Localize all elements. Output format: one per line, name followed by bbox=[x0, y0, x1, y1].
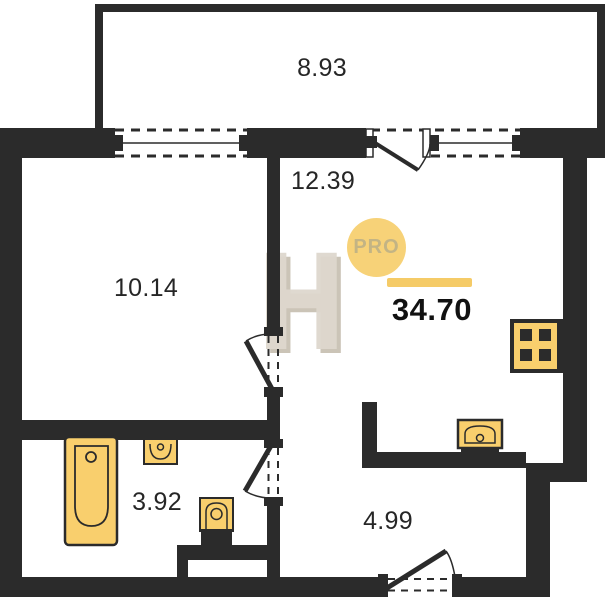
duct-wall-horizontal bbox=[177, 545, 270, 560]
exterior-wall-top-c bbox=[520, 128, 605, 158]
floor-plan: H H bbox=[0, 0, 607, 600]
exterior-wall-left bbox=[0, 128, 22, 597]
entrance-door-jamb bbox=[452, 574, 462, 597]
bathroom-wall-top bbox=[0, 420, 280, 440]
balcony-door bbox=[364, 129, 430, 170]
bathroom-area-label: 3.92 bbox=[107, 488, 207, 517]
window-cap bbox=[114, 135, 123, 151]
plan-symbols-under: H H bbox=[0, 0, 607, 600]
balcony-area-label: 8.93 bbox=[272, 54, 372, 83]
window-cap bbox=[512, 135, 521, 151]
bathroom-door bbox=[245, 444, 272, 498]
stove-icon bbox=[510, 319, 563, 373]
pro-badge-label: PRO bbox=[353, 236, 399, 259]
exterior-wall-right-upper bbox=[563, 158, 587, 482]
door-jamb bbox=[264, 497, 283, 506]
exterior-wall-bottom-a bbox=[0, 577, 387, 597]
balcony-wall-top bbox=[95, 4, 605, 12]
balcony-wall-right bbox=[597, 4, 605, 132]
entrance-door bbox=[387, 551, 455, 588]
interior-wall-b bbox=[267, 392, 280, 444]
door-jamb bbox=[264, 387, 283, 397]
pro-badge: PRO bbox=[347, 218, 406, 277]
exterior-wall-top-b bbox=[247, 128, 366, 158]
total-area-value: 34.70 bbox=[362, 292, 472, 328]
window-cap bbox=[430, 135, 439, 151]
duct-wall-vertical bbox=[177, 545, 188, 578]
accent-bar bbox=[387, 278, 472, 287]
room-area-label: 10.14 bbox=[96, 274, 196, 303]
window-cap bbox=[239, 135, 248, 151]
kitchen-wall-horizontal bbox=[362, 452, 526, 468]
hallway-area-label: 4.99 bbox=[338, 507, 438, 536]
plan-symbols-over bbox=[0, 0, 607, 600]
living-room-area-label: 12.39 bbox=[263, 167, 383, 196]
door-jamb bbox=[264, 439, 283, 448]
entrance-door-jamb bbox=[378, 574, 388, 597]
exterior-wall-bottom-b bbox=[452, 577, 550, 597]
balcony-wall-left bbox=[95, 4, 103, 128]
room-door bbox=[246, 334, 272, 389]
door-jamb bbox=[264, 327, 283, 336]
